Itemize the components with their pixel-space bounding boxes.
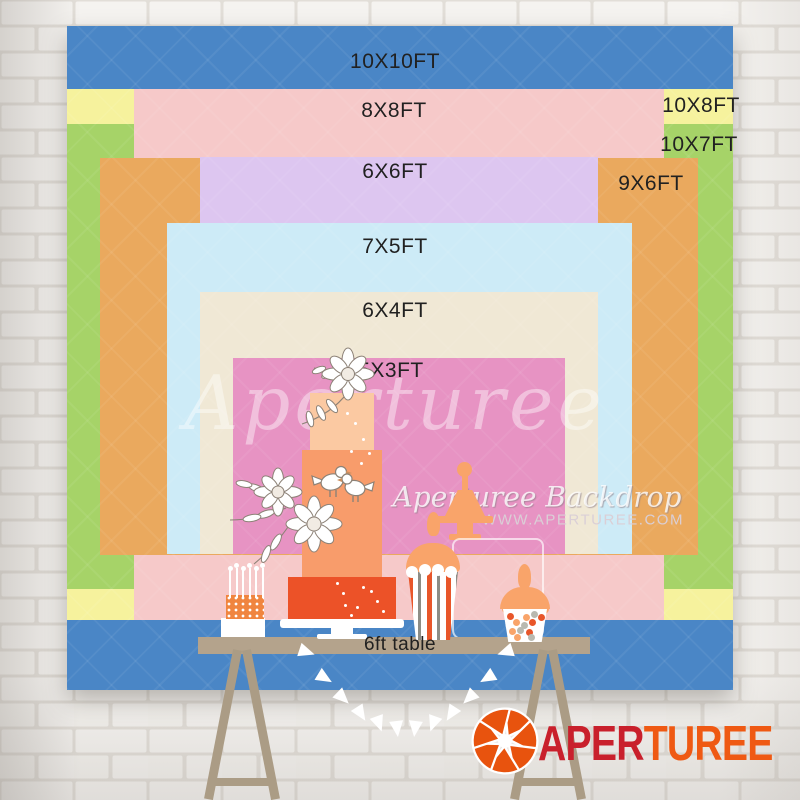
candy-piece [517, 627, 524, 634]
watermark-website: WWW.APERTUREE.COM [482, 512, 684, 529]
pennant-flag [407, 721, 423, 738]
pennant-flag [424, 714, 443, 734]
logo-text-primary: APER [538, 717, 644, 771]
pennant-flag [477, 668, 498, 688]
pennant-flag [315, 668, 336, 688]
popcorn-lid-knob [427, 512, 440, 536]
popcorn-scallop [445, 566, 457, 578]
candy-piece [534, 627, 541, 634]
candy-piece [515, 611, 522, 618]
cake-sprinkles [336, 582, 339, 585]
cake-stand-base [317, 634, 367, 639]
size-label-10x8ft: 10X8FT [662, 94, 740, 118]
popcorn-scallop [419, 564, 431, 576]
size-label-6x6ft: 6X6FT [362, 160, 428, 184]
candy-piece [529, 619, 536, 626]
candy-piece [538, 614, 545, 621]
candy-piece [507, 613, 514, 620]
cake-pop-stick [242, 568, 244, 598]
cake-pop-stick [255, 568, 257, 598]
brand-logo-text: APERTUREE [538, 716, 773, 772]
cake-tier-bottom [288, 577, 396, 621]
aperture-icon [468, 702, 542, 780]
trestle-brace [214, 778, 271, 786]
popcorn-striped-cup [408, 572, 458, 640]
size-label-7x5ft: 7X5FT [362, 235, 428, 259]
candy-piece [513, 619, 520, 626]
backdrop-size-chart: 10X10FT 8X8FT 10X8FT 10X7FT 6X6FT 9X6FT … [0, 0, 800, 800]
cake-pop-stick [262, 568, 264, 598]
candy-piece [528, 634, 535, 641]
pennant-flag [441, 703, 461, 724]
pennant-flag [389, 721, 405, 738]
candy-piece [505, 621, 512, 628]
cake-pop-stick [249, 568, 251, 598]
candy-piece [531, 611, 538, 618]
watermark-script: Aperturee [184, 359, 605, 447]
flower-cluster-top [286, 344, 381, 429]
size-label-8x8ft: 8X8FT [361, 99, 427, 123]
brand-logo: APERTUREE [468, 702, 788, 792]
size-label-10x10ft: 10X10FT [350, 50, 440, 74]
cake-pop-stick [229, 568, 231, 598]
pennant-flag [297, 643, 317, 661]
logo-text-secondary: TUREE [644, 717, 773, 771]
popcorn-scallop [406, 566, 418, 578]
candy-jar-knob [518, 564, 531, 589]
size-label-10x7ft: 10X7FT [660, 133, 738, 157]
size-label-6x4ft: 6X4FT [362, 299, 428, 323]
popcorn-jar [402, 510, 464, 642]
size-label-9x6ft: 9X6FT [618, 172, 684, 196]
cake-pop-stand-base [221, 618, 265, 637]
candy-jar [500, 564, 550, 642]
cake-pop-stick [236, 568, 238, 598]
pennant-flag [370, 714, 389, 734]
pennant-flag [351, 703, 371, 724]
cake-pop-block [226, 595, 264, 619]
pennant-flag [332, 688, 353, 709]
popcorn-scallop [432, 564, 444, 576]
flower-cluster-main [226, 458, 361, 570]
candy-jar-candies [503, 609, 547, 642]
candy-piece [514, 634, 521, 641]
